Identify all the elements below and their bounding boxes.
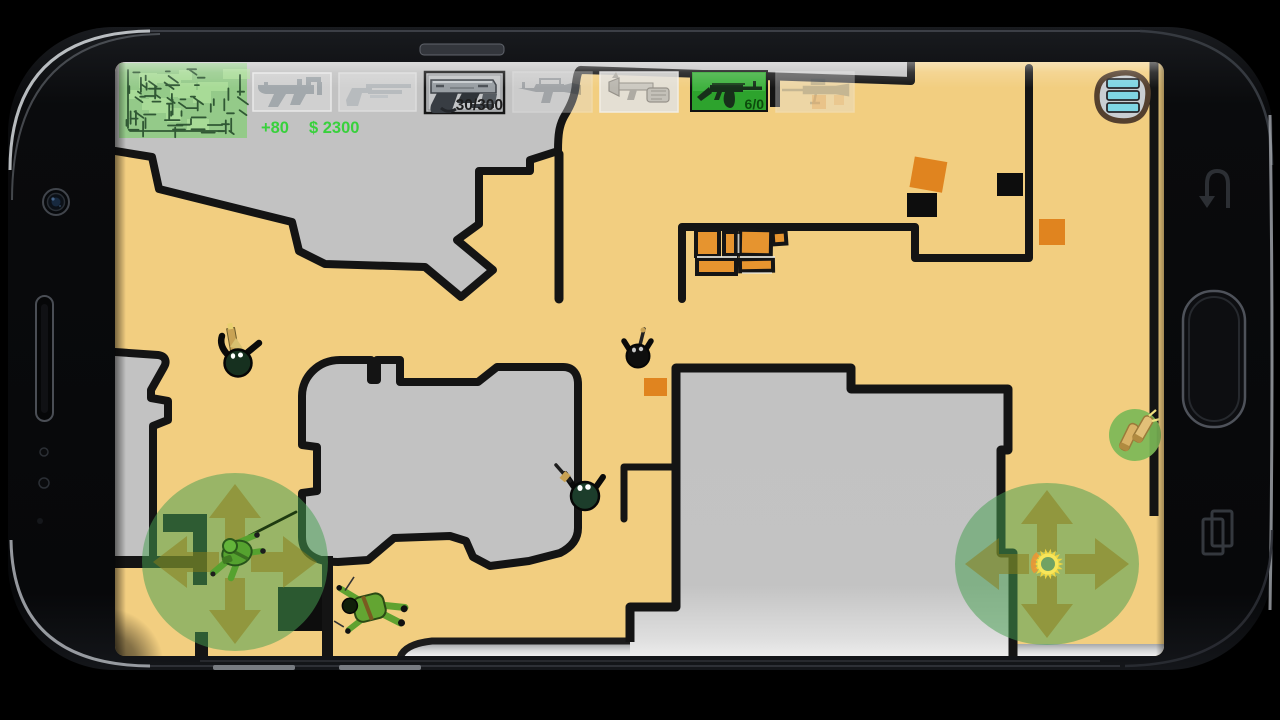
svg-text:+80: +80 <box>261 119 289 137</box>
svg-text:$ 2300: $ 2300 <box>309 119 359 137</box>
